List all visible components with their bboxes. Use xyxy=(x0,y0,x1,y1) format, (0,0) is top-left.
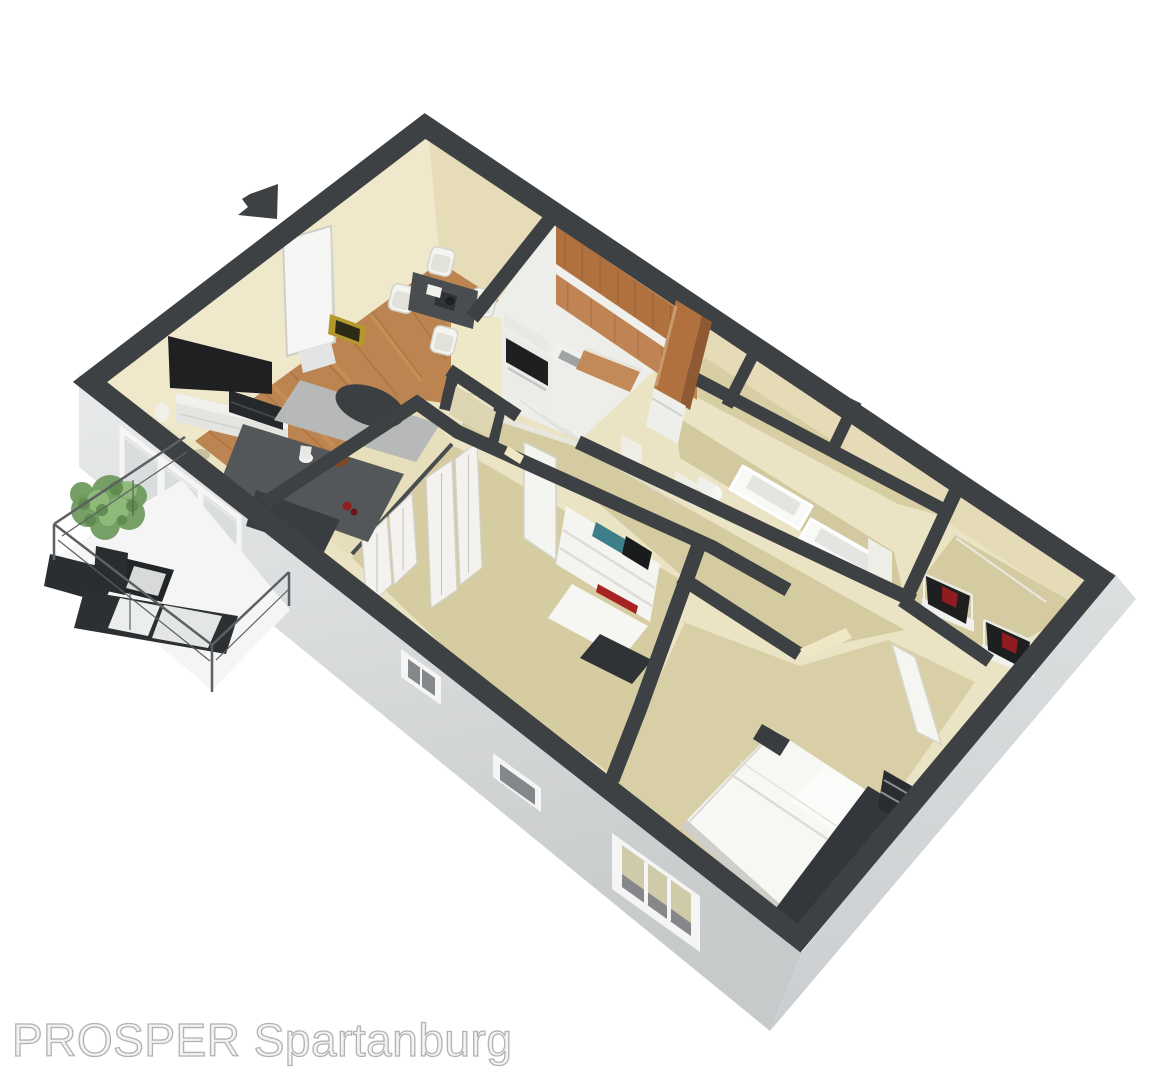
svg-text:PROSPER Spartanburg: PROSPER Spartanburg xyxy=(12,1014,512,1066)
